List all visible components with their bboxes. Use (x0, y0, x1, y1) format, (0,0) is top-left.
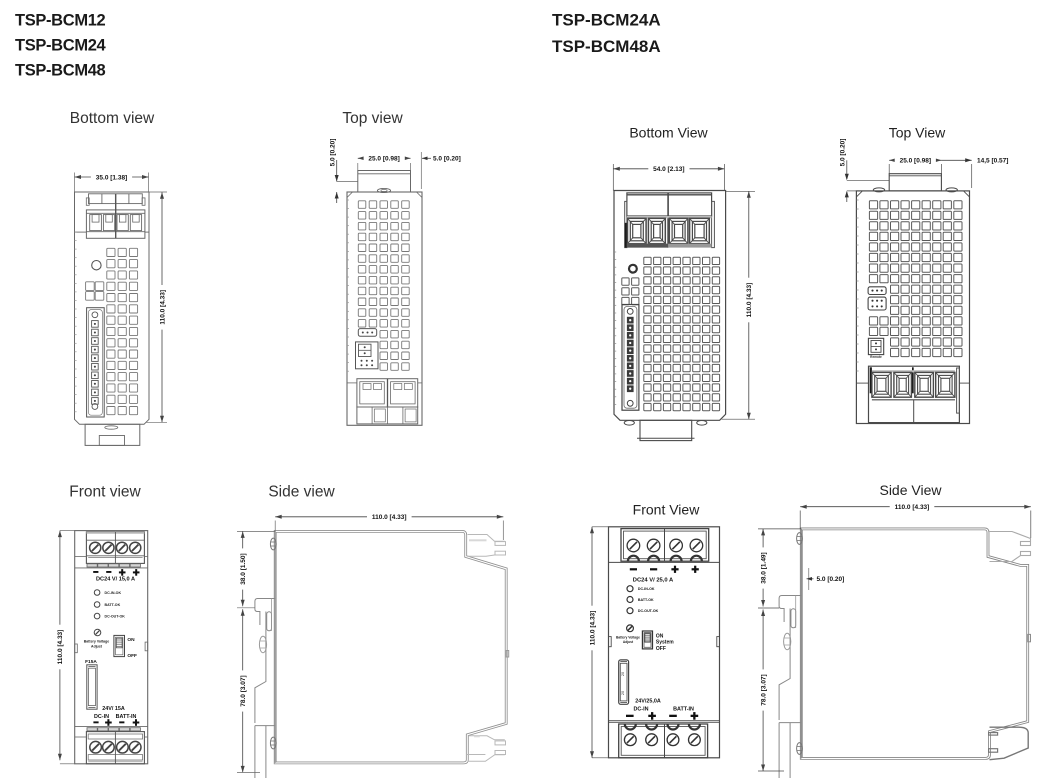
svg-text:Top View: Top View (889, 125, 946, 141)
svg-text:DC24 V/ 25,0 A: DC24 V/ 25,0 A (633, 578, 674, 584)
svg-text:Battery Voltage: Battery Voltage (616, 635, 640, 639)
svg-text:DC-IN: DC-IN (94, 714, 109, 720)
svg-text:DC24 V/ 15,0 A: DC24 V/ 15,0 A (96, 577, 135, 583)
svg-text:78.0 [3.07]: 78.0 [3.07] (240, 675, 247, 706)
svg-text:54.0 [2.13]: 54.0 [2.13] (653, 166, 684, 173)
svg-text:Top view: Top view (342, 110, 403, 127)
svg-text:DC-OUT-OK: DC-OUT-OK (638, 609, 659, 613)
svg-text:35.0 [1.38]: 35.0 [1.38] (96, 174, 127, 181)
svg-text:OFF: OFF (656, 646, 666, 652)
svg-text:110.0 [4.33]: 110.0 [4.33] (57, 630, 64, 665)
svg-text:DC-IN-OK: DC-IN-OK (105, 591, 122, 595)
svg-text:Side view: Side view (268, 484, 335, 501)
svg-text:OFF: OFF (127, 653, 137, 659)
svg-text:DC-IN-OK: DC-IN-OK (638, 587, 655, 591)
svg-text:Side View: Side View (879, 482, 942, 498)
svg-text:110.0 [4.33]: 110.0 [4.33] (589, 611, 596, 646)
svg-text:ON: ON (127, 637, 135, 643)
svg-text:BATT-OK: BATT-OK (105, 603, 121, 607)
svg-text:BATT-OK: BATT-OK (638, 598, 654, 602)
svg-text:Adjust: Adjust (623, 640, 634, 644)
svg-text:Remote: Remote (870, 355, 882, 359)
svg-text:25.0 [0.98]: 25.0 [0.98] (900, 158, 931, 165)
svg-text:Bottom View: Bottom View (629, 125, 708, 141)
svg-text:14,5 [0.57]: 14,5 [0.57] (977, 158, 1008, 165)
svg-text:24V/25,0A: 24V/25,0A (635, 698, 661, 704)
svg-text:TSP-BCM12: TSP-BCM12 (15, 12, 106, 30)
svg-text:DC-OUT-OK: DC-OUT-OK (105, 615, 126, 619)
svg-text:Front view: Front view (69, 484, 141, 501)
svg-text:ON: ON (656, 633, 664, 639)
svg-text:Front View: Front View (633, 502, 701, 518)
svg-text:TSP-BCM24: TSP-BCM24 (15, 37, 107, 55)
svg-text:F15A: F15A (85, 659, 97, 665)
svg-text:Battery Voltage: Battery Voltage (84, 640, 109, 644)
svg-text:TSP-BCM24A: TSP-BCM24A (552, 11, 661, 30)
svg-text:5.0 [0.20]: 5.0 [0.20] (840, 139, 847, 167)
svg-text:5.0 [0.20]: 5.0 [0.20] (817, 576, 845, 583)
svg-text:78.0 [3.07]: 78.0 [3.07] (760, 674, 767, 705)
svg-text:BATT-IN: BATT-IN (116, 714, 137, 720)
svg-text:110.0 [4.33]: 110.0 [4.33] (895, 504, 930, 511)
svg-text:24V/ 15A: 24V/ 15A (102, 706, 125, 712)
svg-text:110.0 [4.33]: 110.0 [4.33] (159, 290, 166, 325)
svg-text:20: 20 (621, 691, 625, 695)
svg-text:TSP-BCM48: TSP-BCM48 (15, 62, 106, 80)
svg-text:20: 20 (621, 672, 625, 676)
svg-text:Adjust: Adjust (91, 644, 103, 648)
svg-text:5.0 [0.20]: 5.0 [0.20] (330, 139, 337, 167)
svg-text:110.0 [4.33]: 110.0 [4.33] (746, 283, 753, 318)
svg-text:System: System (656, 640, 674, 646)
svg-text:25.0 [0.98]: 25.0 [0.98] (368, 156, 399, 163)
svg-text:DC-IN: DC-IN (634, 707, 649, 713)
svg-text:TSP-BCM48A: TSP-BCM48A (552, 37, 661, 56)
svg-text:110.0 [4.33]: 110.0 [4.33] (372, 514, 407, 521)
svg-text:Bottom view: Bottom view (70, 110, 155, 127)
svg-text:BATT-IN: BATT-IN (673, 707, 694, 713)
svg-text:38.0 [1.49]: 38.0 [1.49] (760, 552, 767, 583)
svg-text:38.0 [1.50]: 38.0 [1.50] (240, 553, 247, 584)
svg-text:5.0 [0.20]: 5.0 [0.20] (433, 156, 461, 163)
